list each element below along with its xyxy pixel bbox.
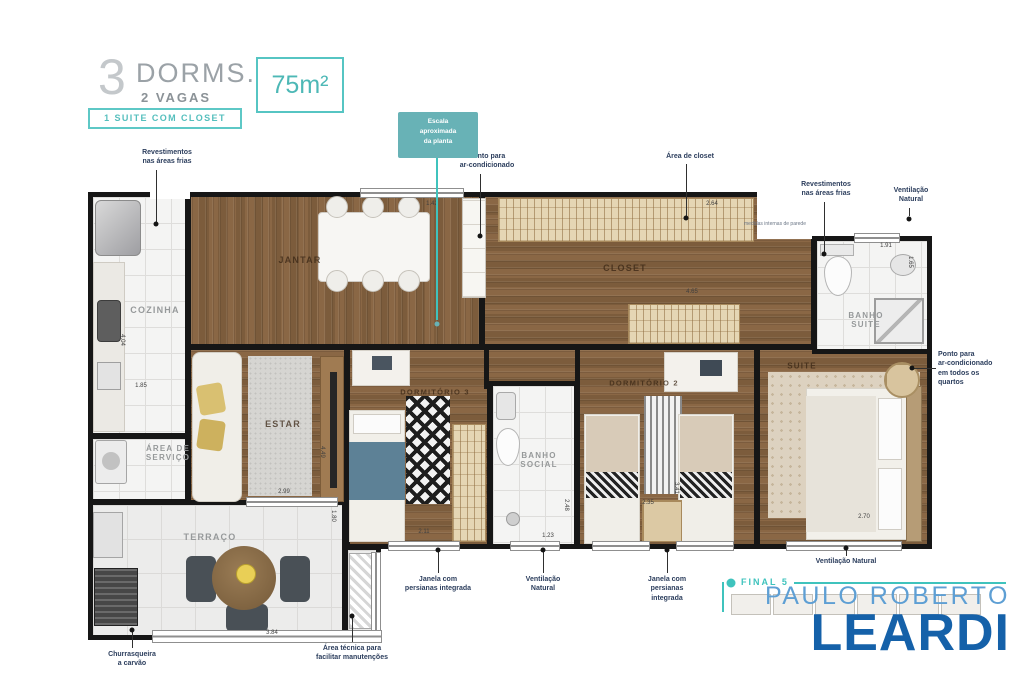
- bedrooms-count: 3: [98, 48, 126, 106]
- leader-line: [132, 630, 133, 648]
- final-label: FINAL 5: [741, 577, 789, 587]
- hall-shelf: [462, 198, 486, 298]
- annotation-area-tecnica: Área técnica para facilitar manutenções: [316, 644, 388, 663]
- suite-badge: 1 SUITE COM CLOSET: [88, 108, 242, 129]
- dimension: 1.65: [907, 256, 913, 268]
- laptop: [372, 356, 392, 370]
- leader-line: [438, 550, 439, 573]
- dimension: 2.99: [278, 489, 290, 495]
- annotation-ponto-ac-quartos: Ponto para ar-condicionado em todos os q…: [938, 350, 992, 388]
- label-banho-social: BANHO SOCIAL: [520, 451, 557, 469]
- label-banho-suite: BANHO SUITE: [848, 311, 883, 329]
- annotation-ventilacao-bottom: Ventilação Natural: [526, 575, 561, 594]
- dimension: 2.48: [563, 499, 569, 511]
- annotation-revestimentos-right: Revestimentos nas áreas frias: [801, 180, 851, 199]
- label-cozinha: COZINHA: [130, 305, 179, 315]
- shower-drain-social: [506, 512, 520, 526]
- leader-dot: [350, 614, 355, 619]
- leader-dot: [910, 366, 915, 371]
- window-banho-social: [510, 541, 560, 551]
- suite-pillow: [878, 398, 902, 460]
- leader-line: [352, 616, 353, 642]
- label-terraco: TERRAÇO: [184, 532, 237, 542]
- leader-line: [156, 170, 157, 222]
- label-suite: SUITE: [787, 362, 817, 371]
- label-closet: CLOSET: [603, 263, 647, 273]
- diamond-rug: [406, 396, 450, 504]
- annotation-janela-right: Janela com persianas integrada: [648, 575, 686, 603]
- callout-leader-dot: [435, 322, 440, 327]
- scale-callout: Escala aproximada da planta: [398, 112, 478, 158]
- dining-chair: [362, 270, 384, 292]
- bed-dorm3-blanket: [349, 442, 405, 500]
- suite-pillow: [878, 468, 902, 530]
- dimension: 2.70: [858, 514, 870, 520]
- bed-right-blanket: [680, 416, 732, 472]
- annotation-ventilacao-top: Ventilação Natural: [894, 186, 929, 205]
- leader-line: [667, 550, 668, 573]
- dimension: 4.49: [319, 446, 325, 458]
- fine-print-note: medidas internas de parede: [744, 221, 806, 227]
- bed-left-pillow: [586, 472, 638, 498]
- final-bracket-h: [794, 582, 1006, 584]
- window-estar-terraco: [246, 497, 338, 507]
- kitchen-counter: [93, 262, 125, 432]
- sofa-cushion: [196, 418, 226, 451]
- dining-chair: [362, 196, 384, 218]
- leader-line: [480, 174, 481, 234]
- sofa-cushion: [196, 382, 227, 416]
- annotation-area-closet: Área de closet: [666, 152, 714, 161]
- dimension: 2.64: [706, 201, 718, 207]
- label-estar: ESTAR: [265, 419, 301, 429]
- dimension: 4.65: [686, 289, 698, 295]
- leader-line: [686, 164, 687, 216]
- bed-right-pillow: [680, 472, 732, 498]
- churrasqueira: [94, 568, 138, 626]
- dimension: 3.41: [673, 482, 679, 494]
- dimension: 4.04: [119, 334, 125, 346]
- stove: [97, 362, 121, 390]
- washer-door: [102, 452, 120, 470]
- window-dorm3: [388, 541, 460, 551]
- leader-dot: [822, 252, 827, 257]
- leader-line: [543, 550, 544, 573]
- terrace-chair-right: [280, 556, 310, 602]
- leader-line: [909, 208, 910, 216]
- kitchen-sink: [97, 300, 121, 342]
- striped-rug: [644, 396, 682, 494]
- wardrobe-dorm3: [452, 424, 486, 542]
- leader-dot: [154, 222, 159, 227]
- sink-social: [496, 392, 516, 420]
- window-terraco-side: [371, 552, 381, 632]
- leader-dot: [478, 234, 483, 239]
- dimension: 2.11: [418, 529, 429, 535]
- dining-chair: [398, 270, 420, 292]
- area-box: 75m²: [256, 57, 344, 113]
- leader-line: [912, 368, 936, 369]
- bed-dorm3-pillow: [353, 414, 401, 434]
- annotation-revestimentos-left: Revestimentos nas áreas frias: [142, 148, 192, 167]
- annotation-janela-left: Janela com persianas integrada: [405, 575, 471, 594]
- final-dot: [727, 579, 736, 588]
- leader-dot: [684, 216, 689, 221]
- dimension: 1.23: [542, 533, 554, 539]
- parking-label: 2 VAGAS: [141, 90, 211, 105]
- leader-dot: [665, 548, 670, 553]
- terrace-sink: [93, 512, 123, 558]
- floorplan-page: 3 DORMS. 2 VAGAS 1 SUITE COM CLOSET 75m²…: [0, 0, 1024, 688]
- annotation-ventilacao-suite: Ventilação Natural: [816, 557, 877, 566]
- leardi-logo: PAULO ROBERTO LEARDI: [765, 584, 1010, 658]
- nightstand: [642, 500, 682, 542]
- closet-wardrobe-lower: [628, 304, 740, 344]
- dimension: 1.85: [135, 383, 147, 389]
- tv: [330, 372, 337, 488]
- window-jantar: [360, 188, 464, 198]
- label-area-servico: ÁREA DE SERVIÇO: [146, 444, 190, 462]
- label-dormitorio-3: DORMITÓRIO 3: [400, 388, 469, 397]
- window-dorm2-right: [676, 541, 734, 551]
- leader-dot: [907, 217, 912, 222]
- bedrooms-label: DORMS.: [136, 58, 256, 89]
- terrace-plate: [236, 564, 256, 584]
- fridge: [95, 200, 141, 256]
- leader-dot: [436, 548, 441, 553]
- leader-dot: [844, 546, 849, 551]
- suite-blanket: [806, 396, 876, 532]
- window-dorm2-left: [592, 541, 650, 551]
- dining-chair: [326, 270, 348, 292]
- laptop-dorm2: [700, 360, 722, 376]
- suite-headboard: [906, 386, 922, 542]
- final-bracket-v: [722, 582, 724, 612]
- window-banho-suite: [854, 233, 900, 243]
- dining-chair: [398, 196, 420, 218]
- leader-dot: [130, 628, 135, 633]
- label-dormitorio-2: DORMITÓRIO 2: [609, 379, 678, 388]
- logo-main-line: LEARDI: [765, 610, 1010, 658]
- dimension: 1.80: [330, 510, 336, 522]
- dimension: 3.84: [266, 630, 278, 636]
- leader-line: [824, 202, 825, 252]
- dining-chair: [326, 196, 348, 218]
- label-jantar: JANTAR: [278, 255, 321, 265]
- bed-left-blanket: [586, 416, 638, 472]
- callout-leader-line: [436, 158, 438, 320]
- annotation-churrasqueira: Churrasqueira a carvão: [108, 650, 156, 669]
- dimension: 2.35: [642, 500, 654, 506]
- leader-dot: [541, 548, 546, 553]
- dimension: 1.91: [880, 243, 892, 249]
